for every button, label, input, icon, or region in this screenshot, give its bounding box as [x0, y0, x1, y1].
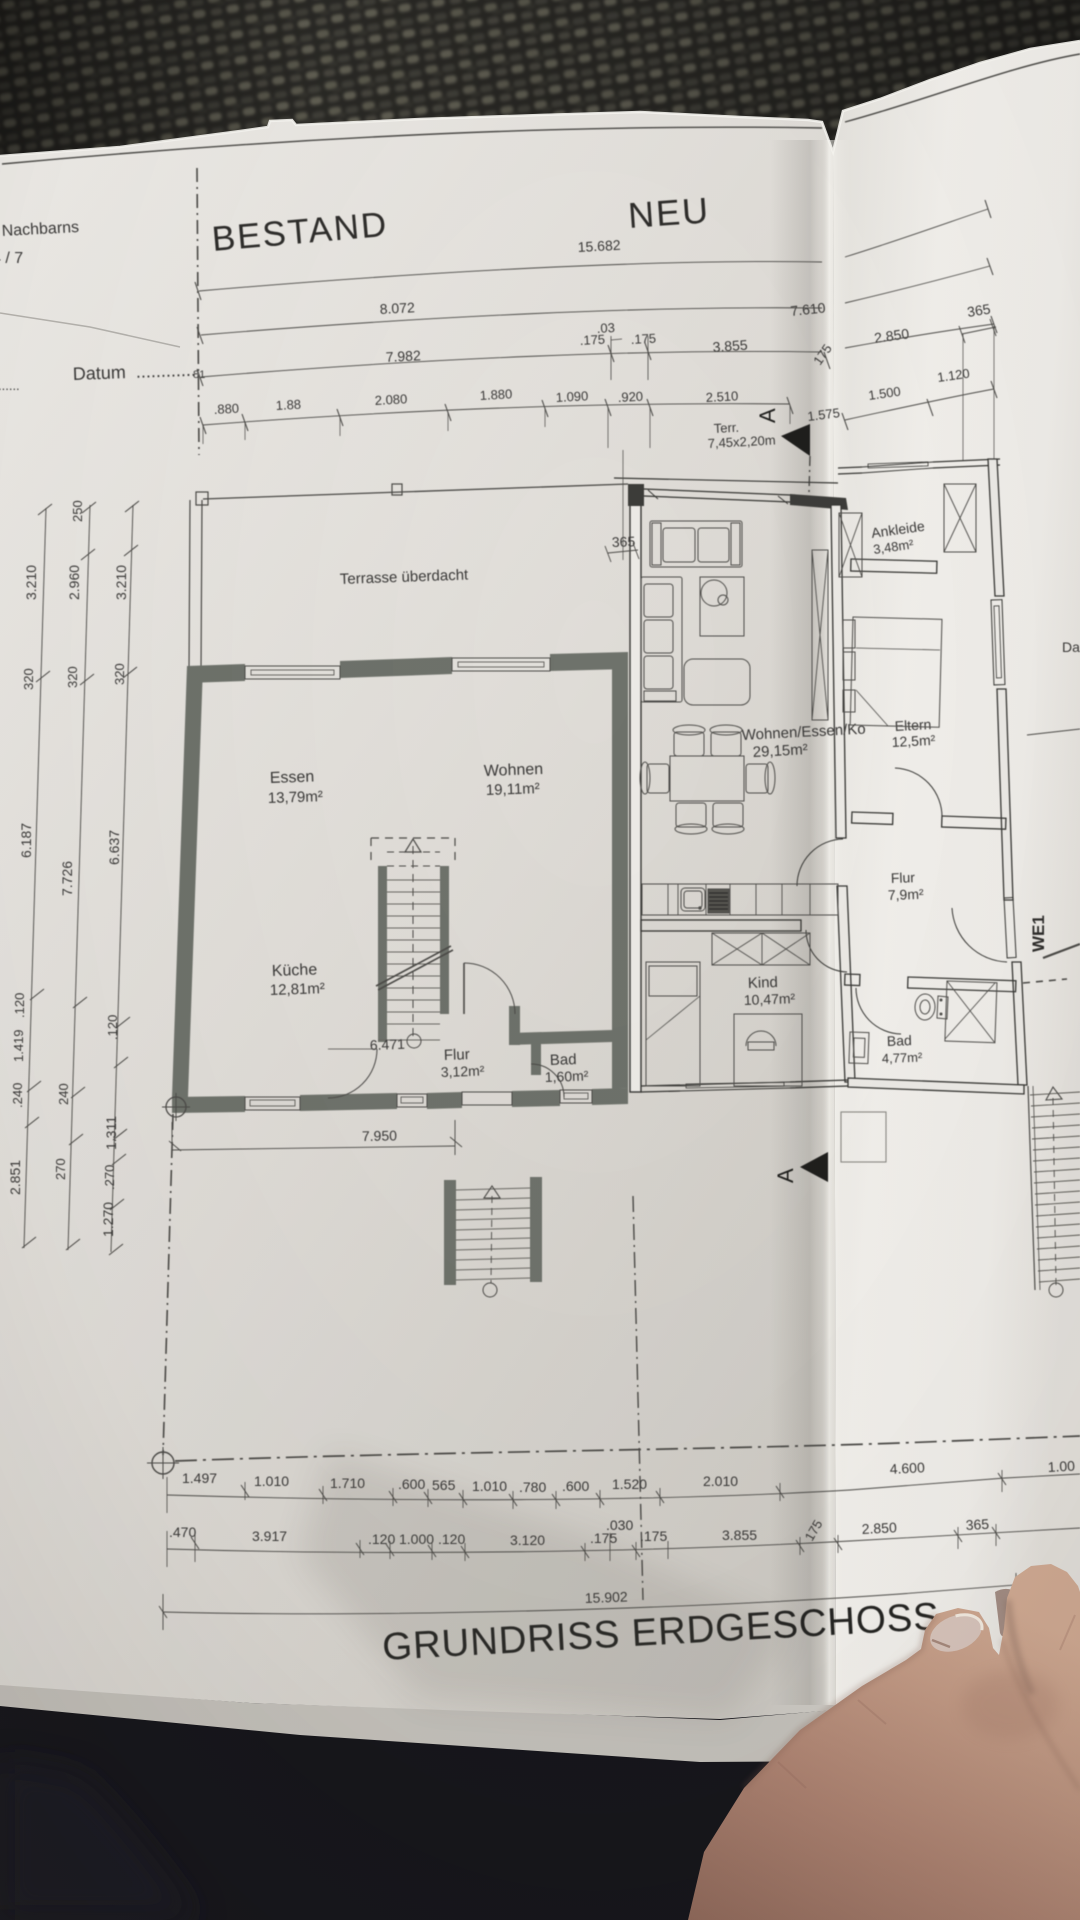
svg-text:NEU: NEU — [627, 189, 712, 236]
svg-text:1.090: 1.090 — [555, 388, 588, 405]
svg-text:3.917: 3.917 — [252, 1528, 287, 1544]
svg-text:1.010: 1.010 — [254, 1473, 289, 1489]
svg-text:.175: .175 — [579, 332, 605, 348]
svg-text:3.210: 3.210 — [23, 565, 39, 600]
svg-text:365: 365 — [965, 1516, 989, 1533]
svg-text:.780: .780 — [519, 1479, 546, 1495]
svg-text:250: 250 — [70, 500, 85, 522]
svg-text:10,47m²: 10,47m² — [744, 990, 796, 1008]
svg-text:15.682: 15.682 — [577, 237, 621, 255]
svg-text:A: A — [773, 1168, 798, 1183]
svg-text:1.311: 1.311 — [103, 1116, 119, 1150]
svg-text:2.851: 2.851 — [7, 1160, 23, 1195]
svg-text:Küche: Küche — [272, 961, 318, 980]
svg-text:320: 320 — [112, 663, 127, 685]
svg-text:......: ...... — [0, 378, 20, 393]
svg-text:12,5m²: 12,5m² — [891, 732, 936, 750]
svg-text:1.270: 1.270 — [100, 1202, 116, 1237]
svg-text:6.637: 6.637 — [106, 830, 122, 865]
svg-text:.920: .920 — [617, 389, 643, 405]
svg-text:270: 270 — [53, 1158, 68, 1180]
svg-text:3.855: 3.855 — [712, 337, 748, 355]
svg-text:7,9m²: 7,9m² — [888, 886, 925, 903]
svg-text:1.010: 1.010 — [472, 1478, 507, 1494]
svg-text:1.419: 1.419 — [11, 1029, 26, 1062]
svg-text:Terr.: Terr. — [713, 420, 739, 436]
svg-text:19,11m²: 19,11m² — [486, 780, 540, 799]
svg-text:.270: .270 — [102, 1165, 117, 1190]
svg-text:1.520: 1.520 — [612, 1476, 647, 1492]
svg-text:1.497: 1.497 — [182, 1470, 217, 1486]
svg-text:6.471: 6.471 — [370, 1036, 406, 1053]
svg-text:365: 365 — [612, 533, 636, 550]
svg-text:2.010: 2.010 — [703, 1473, 738, 1489]
svg-text:.030: .030 — [606, 1517, 633, 1533]
svg-text:1.00: 1.00 — [1047, 1458, 1075, 1475]
svg-text:4 / 7: 4 / 7 — [0, 250, 23, 267]
svg-text:Bad: Bad — [550, 1051, 577, 1069]
svg-text:13,79m²: 13,79m² — [268, 788, 324, 807]
svg-text:Wohnen: Wohnen — [484, 761, 544, 780]
svg-text:240: 240 — [56, 1083, 71, 1105]
svg-text:3.855: 3.855 — [722, 1527, 757, 1543]
svg-text:.240: .240 — [10, 1083, 25, 1108]
svg-text:.600: .600 — [562, 1478, 589, 1494]
svg-text:2.960: 2.960 — [66, 565, 82, 600]
svg-text:1.880: 1.880 — [479, 386, 512, 403]
svg-text:4.600: 4.600 — [889, 1459, 925, 1477]
svg-text:4,77m²: 4,77m² — [882, 1050, 924, 1066]
svg-text:Flur: Flur — [891, 869, 916, 886]
svg-text:320: 320 — [21, 668, 36, 690]
svg-text:8.072: 8.072 — [379, 299, 415, 317]
svg-text:.880: .880 — [213, 401, 239, 417]
svg-text:WE1: WE1 — [1029, 915, 1048, 952]
svg-text:.120: .120 — [105, 1015, 120, 1040]
svg-text:6.187: 6.187 — [18, 823, 34, 858]
svg-text:Da: Da — [1062, 639, 1080, 655]
svg-text:2.080: 2.080 — [374, 391, 407, 408]
svg-text:12,81m²: 12,81m² — [270, 980, 326, 999]
svg-text:3.210: 3.210 — [113, 565, 129, 600]
svg-text:.120: .120 — [12, 993, 27, 1018]
svg-text:.470: .470 — [169, 1524, 196, 1540]
svg-text:Essen: Essen — [270, 768, 315, 787]
svg-text:Kind: Kind — [748, 974, 779, 992]
svg-text:2.850: 2.850 — [861, 1519, 897, 1537]
svg-text:320: 320 — [65, 666, 80, 688]
svg-text:.175: .175 — [640, 1528, 667, 1544]
svg-text:Bad: Bad — [887, 1032, 912, 1049]
svg-text:29,15m²: 29,15m² — [752, 741, 808, 761]
svg-text:1.88: 1.88 — [275, 397, 301, 413]
svg-text:7.950: 7.950 — [362, 1127, 398, 1144]
svg-text:.175: .175 — [630, 331, 656, 347]
svg-text:7.726: 7.726 — [59, 861, 75, 896]
svg-text:A: A — [755, 408, 780, 423]
svg-text:1,60m²: 1,60m² — [545, 1067, 589, 1085]
svg-text:3,12m²: 3,12m² — [441, 1062, 485, 1080]
svg-text:2.510: 2.510 — [705, 388, 738, 405]
svg-text:Flur: Flur — [444, 1046, 470, 1064]
